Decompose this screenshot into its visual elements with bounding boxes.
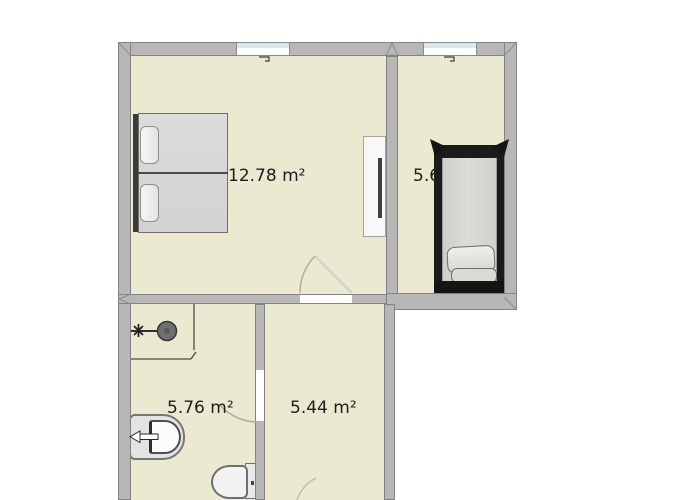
area-label-bedroom-small: 5.6 — [413, 166, 440, 186]
double-bed[interactable] — [133, 113, 228, 233]
wall-hallway-right — [384, 304, 395, 500]
toilet-flush-button — [251, 481, 254, 485]
wall-right — [504, 42, 517, 310]
window[interactable] — [423, 42, 477, 56]
window[interactable] — [236, 42, 290, 56]
wall-left — [118, 42, 131, 500]
window-glass — [424, 43, 476, 48]
mattress-split-line — [138, 172, 228, 174]
wardrobe-handle — [378, 158, 382, 218]
bed-headboard — [434, 145, 505, 158]
wall-bedroom-small-bottom — [386, 293, 517, 310]
wall-bedrooms-divider — [386, 56, 398, 304]
area-label-bathroom: 5.76 m² — [167, 398, 234, 418]
sink[interactable] — [129, 414, 185, 460]
area-label-bedroom-large: 12.78 m² — [228, 166, 305, 186]
window-glass — [237, 43, 289, 48]
door-opening-bathroom[interactable] — [256, 370, 264, 421]
pillow — [140, 184, 159, 222]
pillow — [140, 126, 159, 164]
wardrobe[interactable] — [363, 136, 386, 237]
floor-plan-canvas: 12.78 m² 5.6 5.76 m² 5.44 m² — [0, 0, 700, 500]
door-opening-bedroom-large[interactable] — [300, 295, 352, 303]
sink-bowl — [149, 420, 181, 454]
wall-middle — [118, 294, 398, 304]
toilet[interactable] — [211, 465, 248, 499]
single-bed[interactable] — [434, 139, 505, 294]
area-label-hallway: 5.44 m² — [290, 398, 357, 418]
